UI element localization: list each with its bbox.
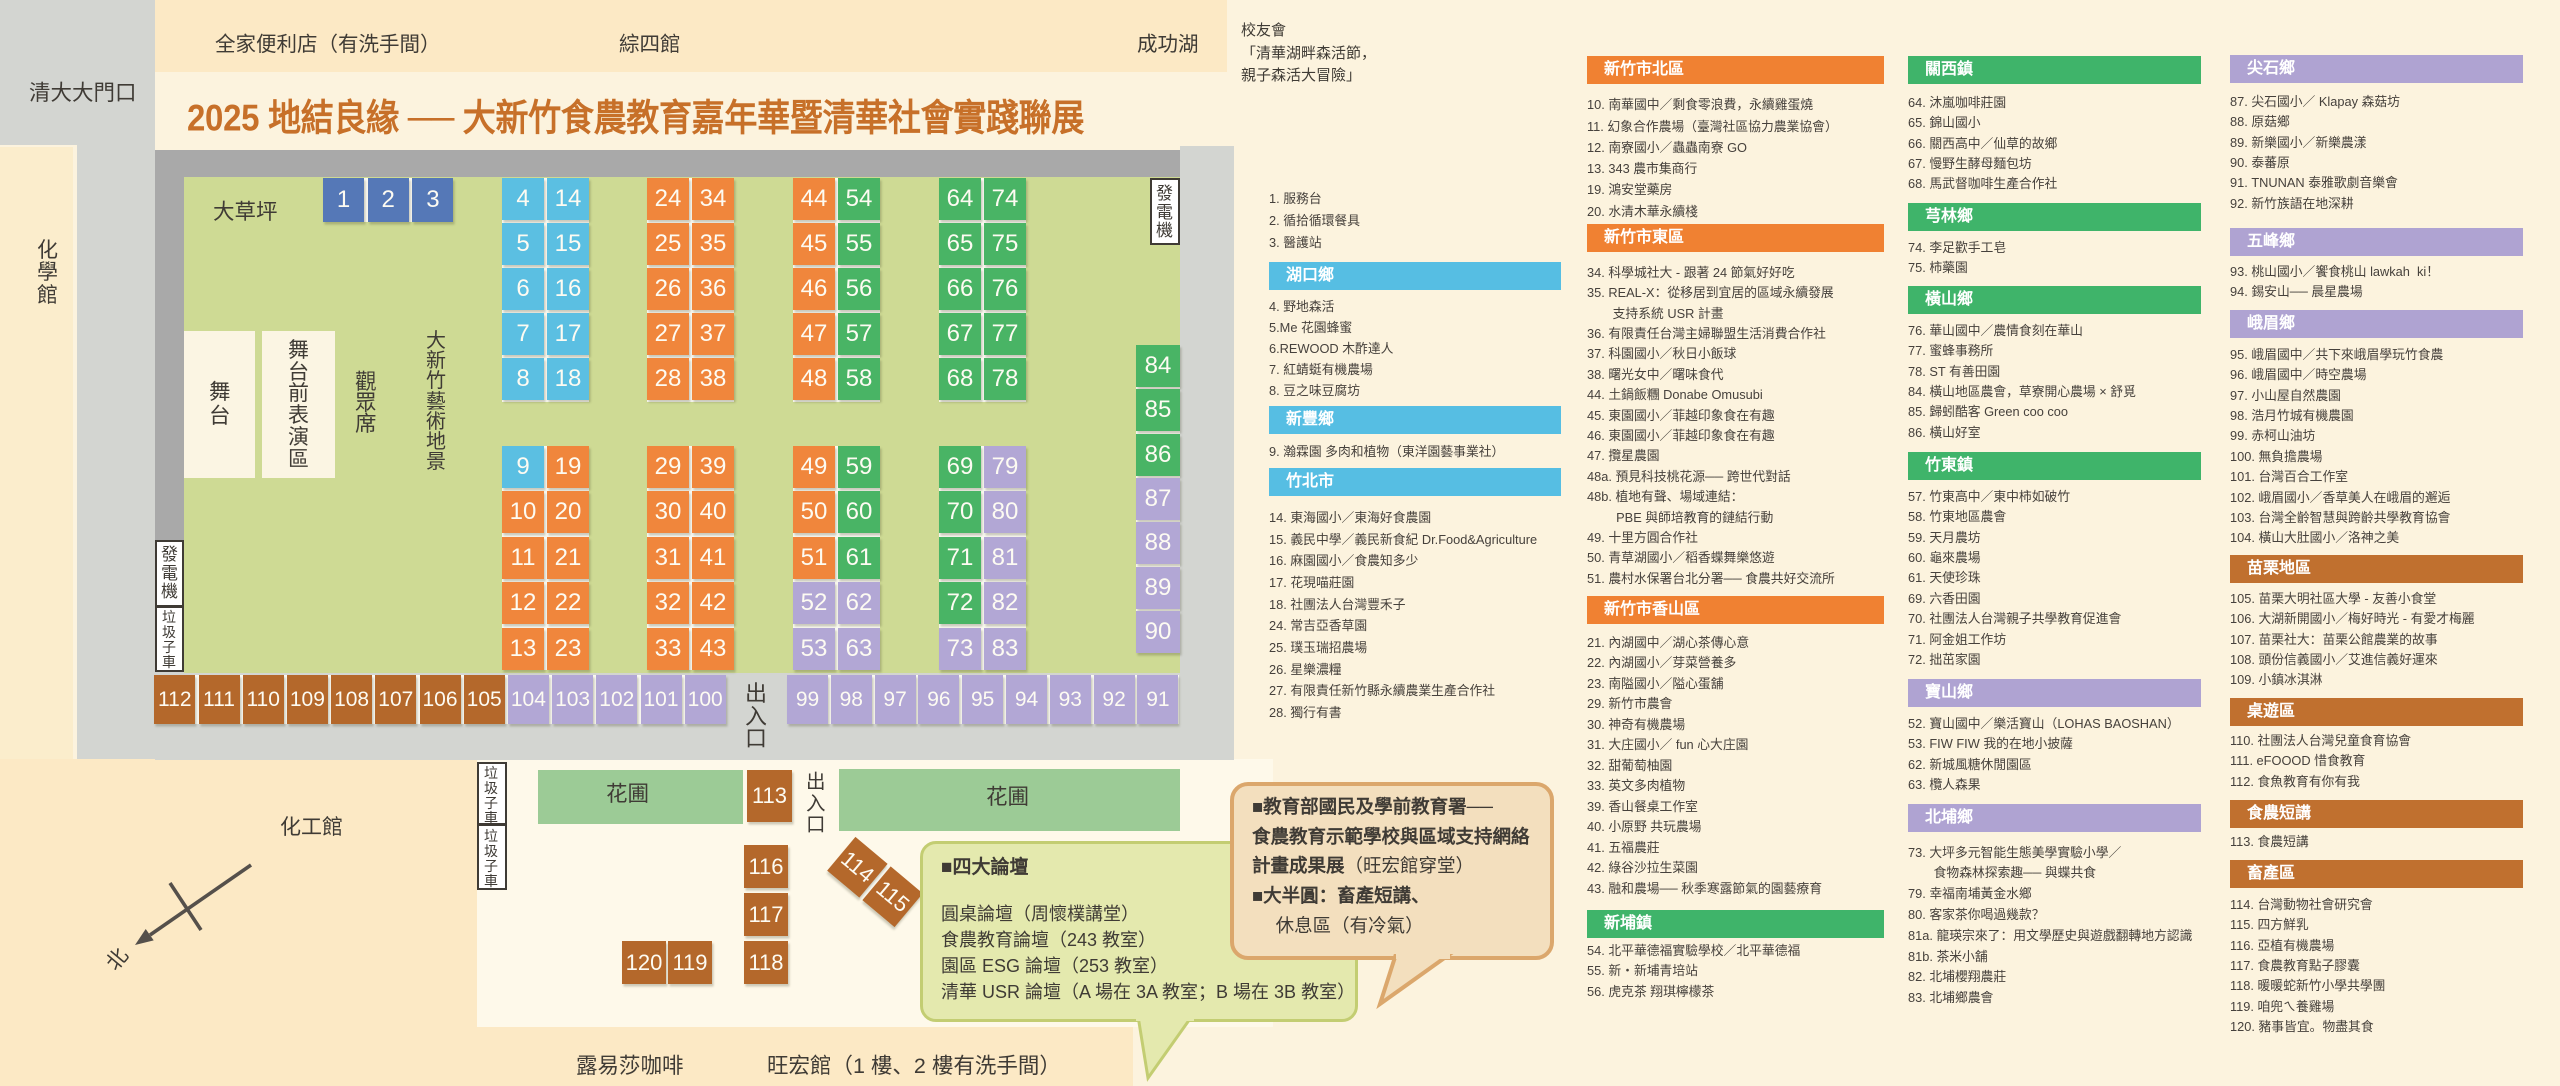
svg-text:北: 北 bbox=[102, 944, 133, 975]
